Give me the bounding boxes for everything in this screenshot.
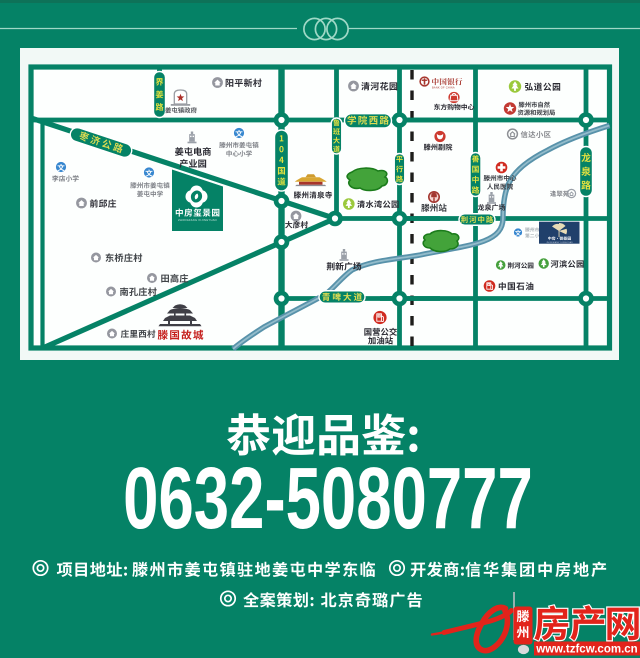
svg-text:ZHONGFANG YUJINGYUAN: ZHONGFANG YUJINGYUAN [546,241,573,244]
svg-text:0632-5080777: 0632-5080777 [123,450,533,547]
svg-text:BANK OF CHINA: BANK OF CHINA [432,86,455,90]
svg-text:ZHONGFANG XIJINGYUAN: ZHONGFANG XIJINGYUAN [178,218,217,222]
svg-text:www.tzfcw.com.cn: www.tzfcw.com.cn [535,644,637,656]
